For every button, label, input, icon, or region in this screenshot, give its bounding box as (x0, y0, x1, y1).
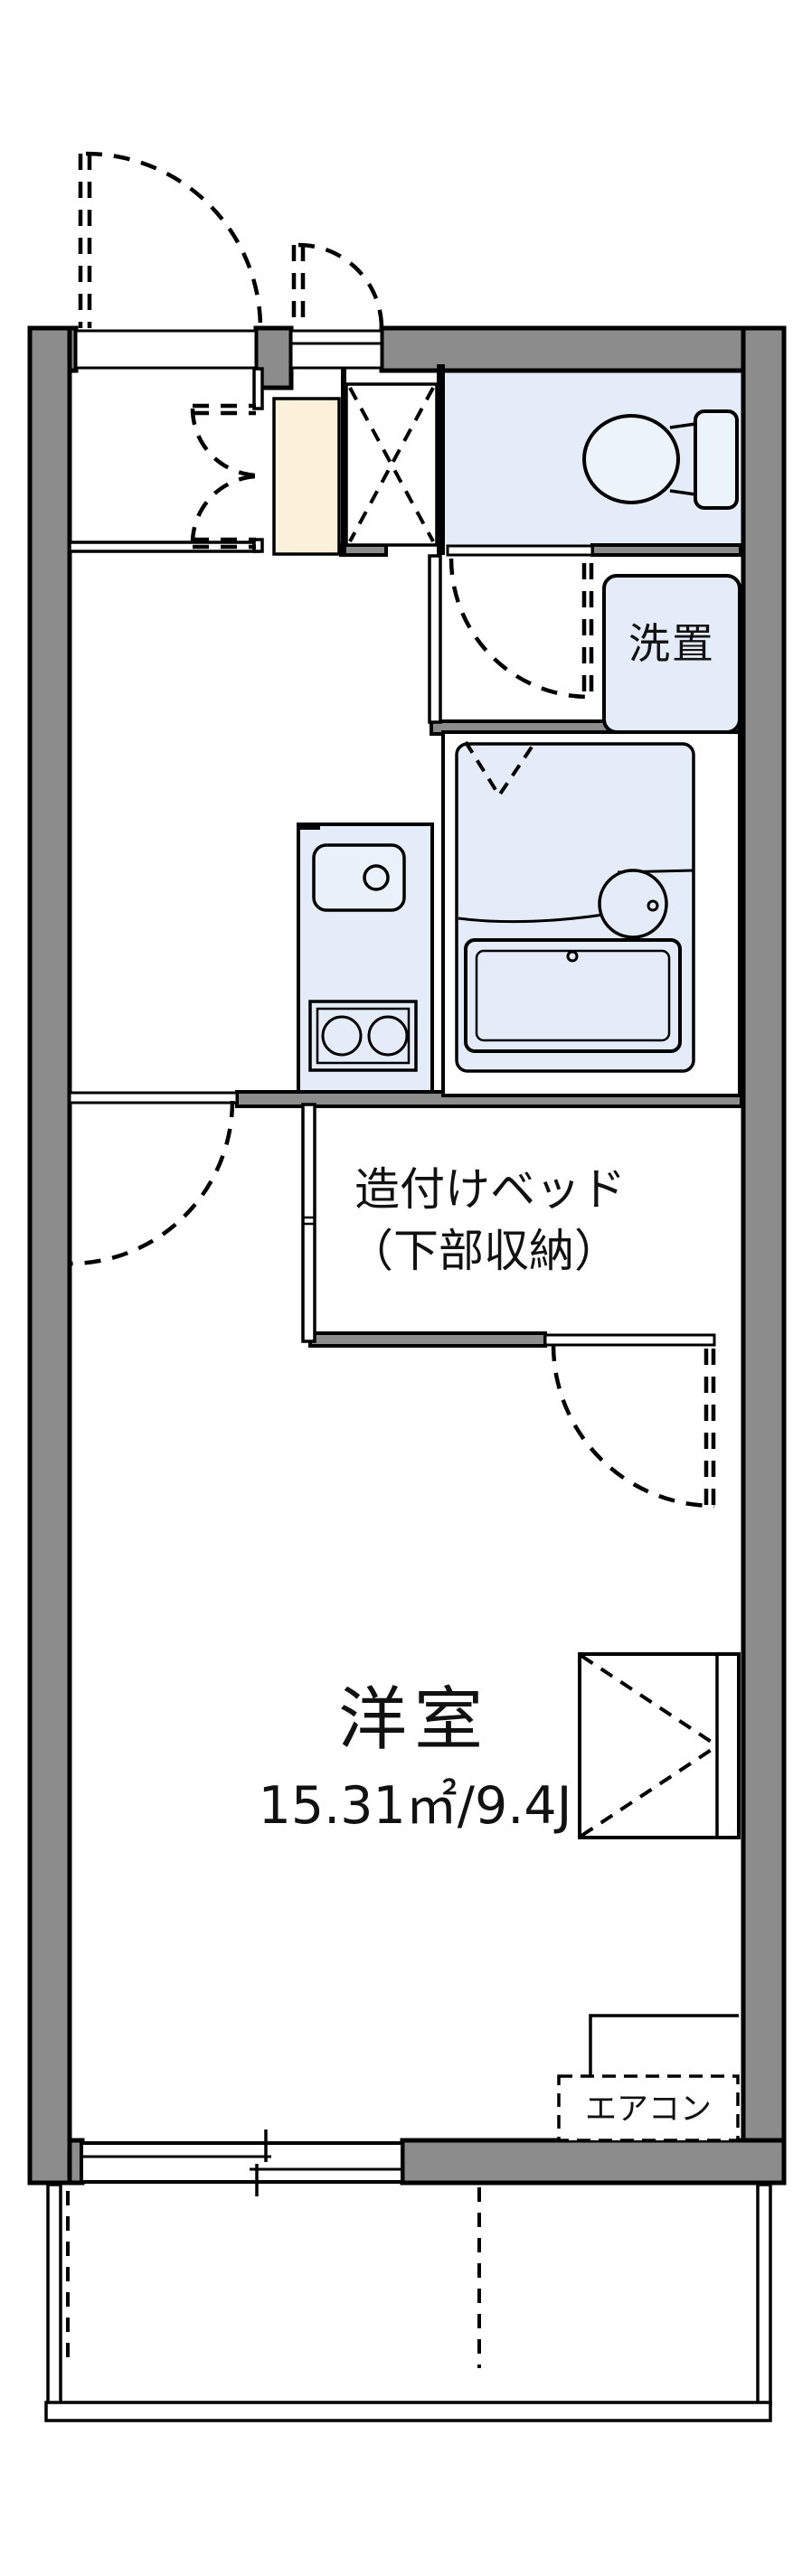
laundry-space: 洗置 (604, 576, 740, 732)
room-name-label: 洋室 (338, 1679, 490, 1760)
aircon-label: エアコン (585, 2092, 712, 2128)
laundry-label: 洗置 (628, 619, 715, 668)
closet-box (580, 1654, 739, 1838)
hall-room-door-arc (70, 1101, 232, 1264)
toilet-tank (695, 411, 737, 508)
toilet-door-opening (448, 546, 592, 555)
window-south (81, 2129, 402, 2196)
toilet-fixture (584, 411, 737, 508)
bathtub-outer (466, 940, 680, 1051)
entry-door-opening (76, 331, 256, 368)
toilet-bowl (584, 416, 678, 503)
overhead-cabinet (346, 384, 437, 545)
window-frame (81, 2143, 402, 2182)
wall-storage-right-top (254, 369, 262, 409)
balcony-rail-bottom (46, 2402, 770, 2421)
entry-small-door-arc (298, 245, 382, 328)
entry-door-arc (86, 154, 260, 328)
toilet-door-arc (451, 559, 590, 697)
room-area-label: 15.31㎡/9.4J (259, 1776, 572, 1836)
wall-toilet-bottom (592, 545, 741, 555)
wall-left (30, 328, 70, 2183)
floorplan-svg: 洗置 造付けベッド （下部収納） 洋室 15.31㎡/9.4J (0, 0, 812, 2576)
storage-door-arc-bottom (193, 476, 260, 543)
wall-washroom-left (430, 556, 440, 722)
wall-bottom (402, 2140, 784, 2183)
balcony-rail-right (758, 2185, 770, 2404)
built-in-bed: 造付けベッド （下部収納） (348, 1163, 626, 1277)
western-room: 洋室 15.31㎡/9.4J (259, 1679, 572, 1837)
bed-door-arc (553, 1345, 714, 1506)
wall-bed-bottom (310, 1333, 545, 1346)
aircon-area: エアコン (559, 2016, 739, 2140)
floorplan-page: 洗置 造付けベッド （下部収納） 洋室 15.31㎡/9.4J (0, 0, 812, 2576)
balcony-rail-left (48, 2185, 61, 2404)
closet (580, 1654, 739, 1838)
kitchen-sink (314, 845, 404, 910)
bathroom (443, 732, 740, 1095)
bed-door-opening (545, 1335, 714, 1345)
kitchen (297, 824, 432, 1092)
hall-room-opening (70, 1093, 237, 1103)
balcony (46, 2185, 770, 2421)
entry-small-opening (291, 331, 382, 368)
wall-top-right-seg (382, 328, 784, 371)
genkan-entry (274, 399, 339, 554)
bed-label-line2: （下部収納） (348, 1225, 619, 1277)
wall-right (743, 328, 784, 2183)
storage-door-arc-top (193, 409, 260, 475)
bed-label-line1: 造付けベッド (354, 1163, 626, 1216)
